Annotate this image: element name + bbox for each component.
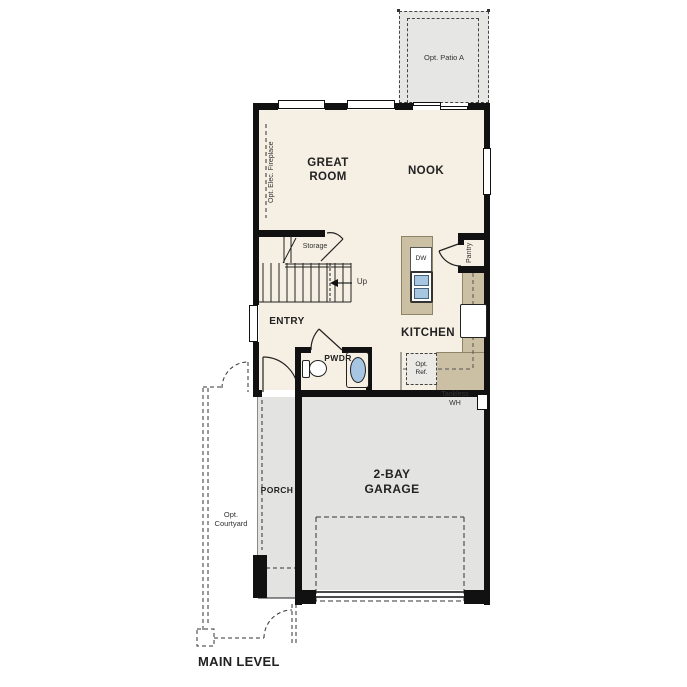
courtyard-label: Opt. Courtyard: [208, 510, 254, 529]
pantry-label: Pantry: [466, 240, 476, 266]
floor-plan-canvas: Opt. Ref. Opt. Patio A GREAT ROOM NOOK O…: [0, 0, 687, 687]
porch-post: [253, 555, 267, 598]
kitchen-counter-bottom: [436, 352, 484, 390]
wall: [484, 103, 490, 148]
patio-label: Opt. Patio A: [399, 53, 489, 62]
sink-basin: [414, 288, 429, 299]
sliding-door-panel: [440, 106, 468, 110]
dishwasher-label: DW: [410, 255, 432, 263]
window: [347, 100, 395, 109]
window: [249, 305, 258, 342]
wall: [253, 342, 259, 397]
nook-label: NOOK: [396, 164, 456, 178]
fireplace-label: Opt. Elec. Fireplace: [268, 125, 278, 219]
wall: [458, 266, 490, 273]
great-room-label: GREAT ROOM: [298, 156, 358, 185]
entry-label: ENTRY: [262, 316, 312, 329]
main-level-title: MAIN LEVEL: [198, 654, 308, 670]
dishwasher-label-bg: DW: [415, 255, 428, 262]
sink-basin: [414, 275, 429, 286]
opt-ref-box: Opt. Ref.: [406, 353, 437, 385]
powder-label: PWDR: [318, 353, 358, 364]
porch-label: PORCH: [258, 485, 296, 496]
window: [483, 148, 491, 195]
opt-ref-label: Opt. Ref.: [412, 361, 432, 377]
stove: [460, 304, 487, 338]
window: [278, 100, 325, 109]
wall: [295, 347, 301, 390]
up-label: Up: [354, 277, 370, 287]
wall: [464, 590, 490, 604]
wall: [253, 103, 259, 305]
wall: [325, 103, 347, 110]
wall: [295, 590, 316, 604]
wall: [253, 230, 325, 237]
tankless-water-heater: [477, 394, 488, 410]
sliding-door-panel: [413, 102, 441, 106]
wall: [295, 390, 302, 605]
wall: [458, 233, 464, 245]
kitchen-sink: [410, 271, 433, 303]
tankless-label: Tankless WH: [435, 391, 475, 409]
wall: [253, 390, 262, 397]
garage-door: [316, 590, 464, 604]
wall: [395, 103, 413, 110]
kitchen-label: KITCHEN: [393, 326, 463, 340]
garage-label: 2-BAY GARAGE: [357, 467, 427, 497]
storage-label: Storage: [297, 243, 333, 252]
